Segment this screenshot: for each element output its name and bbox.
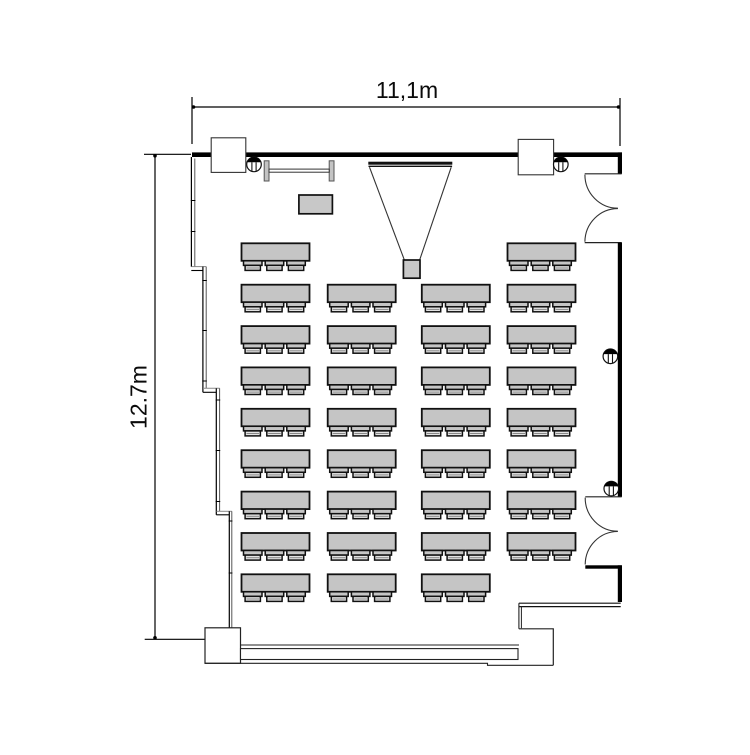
- svg-text:12.7m: 12.7m: [126, 365, 152, 429]
- svg-text:11,1m: 11,1m: [376, 77, 438, 103]
